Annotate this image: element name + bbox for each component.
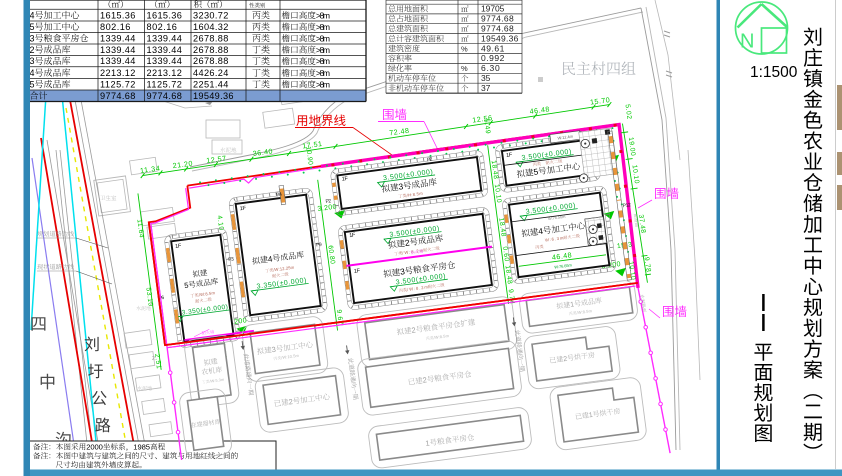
svg-text:9774.68: 9774.68 xyxy=(481,23,514,33)
svg-text:1339.44: 1339.44 xyxy=(147,45,182,55)
svg-text:37: 37 xyxy=(481,83,491,93)
svg-text:>8m: >8m xyxy=(316,79,330,89)
svg-text:19549.36: 19549.36 xyxy=(481,34,519,44)
svg-text:3: 3 xyxy=(30,56,35,66)
svg-text:35: 35 xyxy=(481,73,491,83)
svg-text:802.16: 802.16 xyxy=(147,22,177,32)
svg-text:0.992: 0.992 xyxy=(481,53,505,63)
svg-text:1615.36: 1615.36 xyxy=(100,10,135,20)
svg-text:3: 3 xyxy=(30,33,35,43)
svg-text:1125.72: 1125.72 xyxy=(100,79,135,89)
svg-text:1125.72: 1125.72 xyxy=(147,79,182,89)
svg-text:P12: P12 xyxy=(622,202,631,209)
svg-text:P4: P4 xyxy=(276,192,282,199)
svg-text:4: 4 xyxy=(30,10,35,20)
svg-text:3230.72: 3230.72 xyxy=(193,10,228,20)
svg-text:P9: P9 xyxy=(316,242,322,249)
svg-text:%: % xyxy=(461,64,468,73)
svg-text:1339.44: 1339.44 xyxy=(147,33,182,43)
svg-text:49.61: 49.61 xyxy=(481,43,505,53)
svg-text:1339.44: 1339.44 xyxy=(100,45,135,55)
svg-text:%: % xyxy=(461,44,468,53)
svg-text:2678.88: 2678.88 xyxy=(193,33,228,43)
svg-text:2213.12: 2213.12 xyxy=(147,68,182,78)
svg-text:P2: P2 xyxy=(427,157,433,164)
svg-text:5: 5 xyxy=(30,22,35,32)
svg-text:1339.44: 1339.44 xyxy=(100,33,135,43)
svg-text:2213.12: 2213.12 xyxy=(100,68,135,78)
svg-text:>8m: >8m xyxy=(316,45,330,55)
svg-text:>8m: >8m xyxy=(316,10,330,20)
svg-text:9774.68: 9774.68 xyxy=(147,91,182,101)
svg-text:6.30: 6.30 xyxy=(481,63,500,73)
svg-text:>8m: >8m xyxy=(316,33,330,43)
svg-text:802.16: 802.16 xyxy=(100,22,130,32)
svg-text:1339.44: 1339.44 xyxy=(100,56,135,66)
svg-text:1339.44: 1339.44 xyxy=(147,56,182,66)
svg-text:1615.36: 1615.36 xyxy=(147,10,182,20)
svg-text:>8m: >8m xyxy=(316,56,330,66)
svg-text:2678.88: 2678.88 xyxy=(193,56,228,66)
svg-text:1985: 1985 xyxy=(133,443,150,452)
svg-text:19705: 19705 xyxy=(481,4,505,14)
svg-text:>8m: >8m xyxy=(316,68,330,78)
svg-text:1604.32: 1604.32 xyxy=(193,22,228,32)
svg-text:9774.68: 9774.68 xyxy=(100,91,135,101)
svg-text:1:1500: 1:1500 xyxy=(750,64,798,81)
svg-text:9774.68: 9774.68 xyxy=(481,14,514,24)
svg-text:N: N xyxy=(740,31,754,53)
svg-text:P2: P2 xyxy=(325,198,331,205)
svg-text:19549.36: 19549.36 xyxy=(193,91,234,101)
svg-text:2251.44: 2251.44 xyxy=(193,79,228,89)
svg-text:2: 2 xyxy=(30,45,35,55)
svg-text:4: 4 xyxy=(30,68,35,78)
svg-text:2678.88: 2678.88 xyxy=(193,45,228,55)
svg-text:5: 5 xyxy=(30,79,35,89)
svg-text:P3: P3 xyxy=(228,256,234,263)
svg-text:2000: 2000 xyxy=(86,443,103,452)
svg-text:4426.24: 4426.24 xyxy=(193,68,228,78)
svg-text:>8m: >8m xyxy=(316,22,330,32)
